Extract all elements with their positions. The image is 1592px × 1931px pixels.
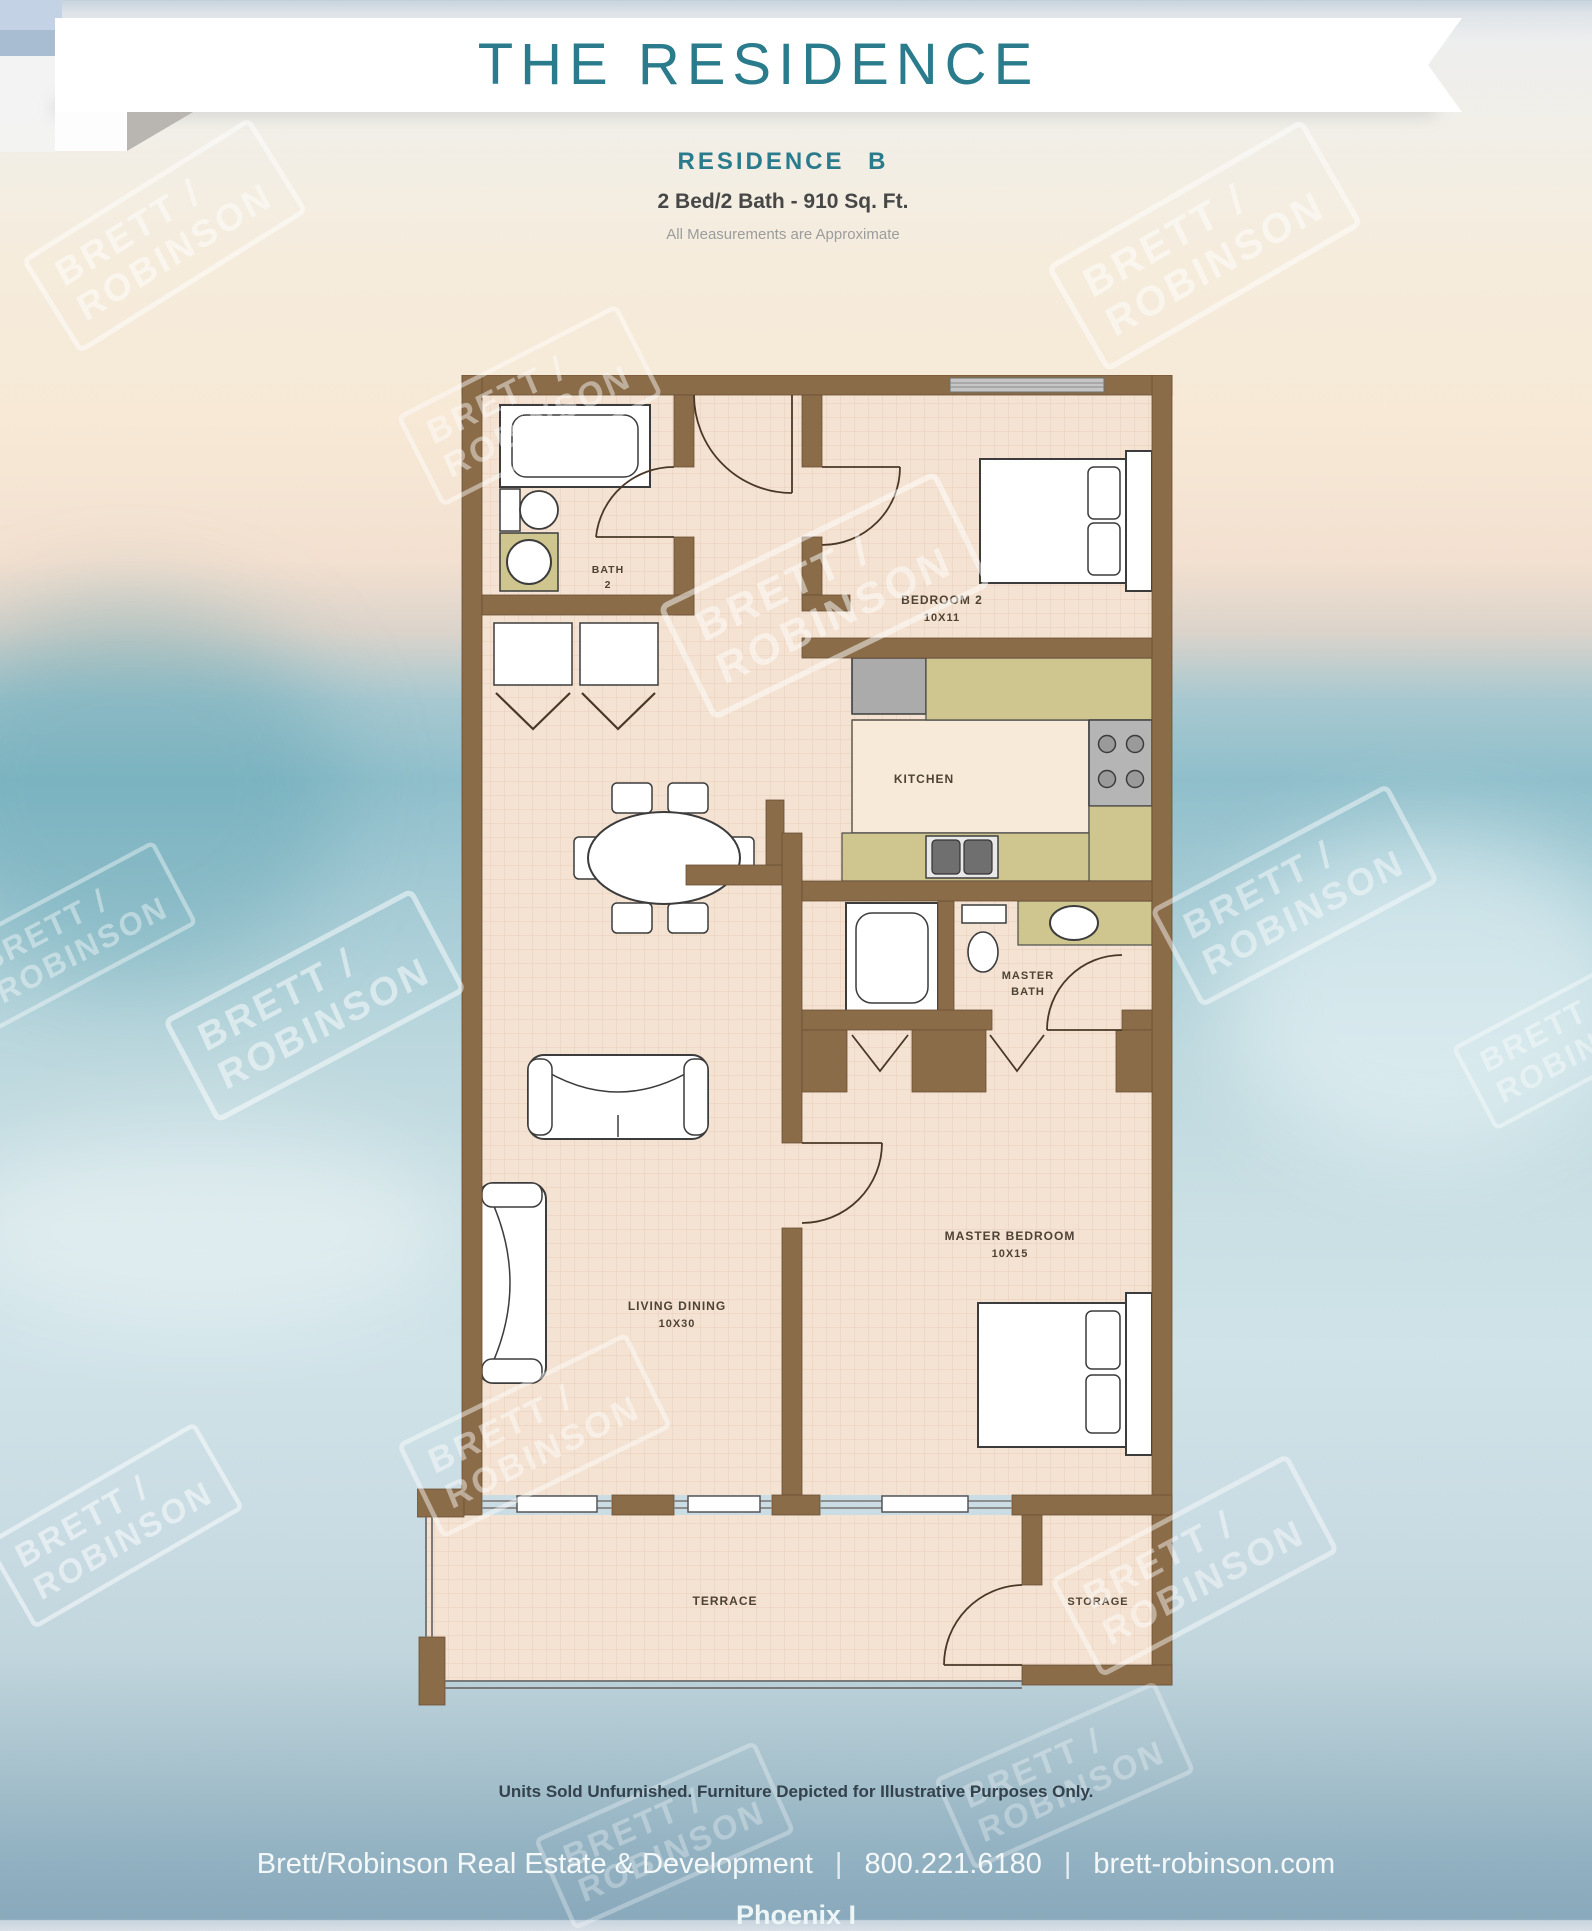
ocean-shade-left — [0, 600, 340, 980]
specs-label: 2 Bed/2 Bath - 910 Sq. Ft. — [0, 190, 1579, 214]
footer-separator-1: | — [835, 1848, 843, 1880]
label-master-bedroom: MASTER BEDROOM — [945, 1229, 1076, 1243]
bath2-toilet — [520, 491, 558, 529]
label-bedroom2: BEDROOM 2 — [901, 593, 983, 607]
dining-table — [588, 812, 740, 904]
stove — [1089, 720, 1152, 806]
footer-building-name: Phoenix I — [0, 1900, 1592, 1931]
subtitle-block: RESIDENCE B 2 Bed/2 Bath - 910 Sq. Ft. A… — [0, 148, 1579, 243]
master-sink — [1050, 906, 1098, 940]
floorplan: BATH 2 BEDROOM 2 10X11 KITCHEN MASTER BA… — [417, 375, 1217, 1715]
footer-phone: 800.221.6180 — [864, 1848, 1041, 1880]
footer-contact-line: Brett/Robinson Real Estate & Development… — [0, 1848, 1592, 1881]
footer-website: brett-robinson.com — [1093, 1848, 1335, 1880]
footer-disclaimer: Units Sold Unfurnished. Furniture Depict… — [0, 1782, 1592, 1802]
corner-white-patch — [0, 56, 55, 152]
brett-robinson-watermark: BRETT /ROBINSON — [0, 840, 198, 1031]
title-banner: THE RESIDENCE — [55, 18, 1462, 112]
floorplan-svg: BATH 2 BEDROOM 2 10X11 KITCHEN MASTER BA… — [417, 375, 1217, 1710]
master-toilet — [968, 932, 998, 972]
measurements-note: All Measurements are Approximate — [0, 226, 1579, 243]
kitchen-fixtures — [842, 658, 1152, 881]
bath2-toilet-tank — [500, 489, 520, 531]
residence-label: RESIDENCE B — [0, 148, 1579, 176]
label-kitchen: KITCHEN — [894, 772, 954, 786]
footer-separator-2: | — [1064, 1848, 1072, 1880]
foam-streak-bottom — [0, 1130, 460, 1330]
corner-sky-patch-1 — [0, 0, 62, 30]
svg-text:BATH: BATH — [1011, 986, 1045, 998]
label-living-dining: LIVING DINING — [628, 1299, 726, 1313]
svg-text:2: 2 — [605, 579, 612, 591]
label-storage: STORAGE — [1067, 1596, 1128, 1608]
brett-robinson-watermark: BRETT /ROBINSON — [1451, 940, 1592, 1131]
corner-sky-patch-2 — [0, 30, 62, 56]
page-title: THE RESIDENCE — [55, 18, 1462, 112]
svg-text:10X15: 10X15 — [992, 1248, 1029, 1260]
master-bed — [978, 1293, 1152, 1455]
sofa — [528, 1055, 708, 1139]
kitchen-counter-top — [926, 658, 1152, 720]
label-terrace: TERRACE — [692, 1594, 757, 1608]
terrace-slider-panels — [517, 1496, 968, 1512]
master-toilet-tank — [962, 905, 1006, 923]
foam-patch-right — [1220, 830, 1592, 1160]
loveseat — [478, 1183, 546, 1383]
bedroom2-window — [950, 378, 1104, 392]
bedroom2-bed — [980, 451, 1152, 591]
label-master-bath: MASTER — [1002, 970, 1054, 982]
label-bath2: BATH — [592, 564, 624, 576]
refrigerator — [852, 658, 926, 714]
svg-text:10X30: 10X30 — [659, 1318, 696, 1330]
bath2-tub — [500, 405, 650, 487]
footer-company-name: Brett/Robinson Real Estate & Development — [257, 1848, 813, 1880]
svg-text:10X11: 10X11 — [924, 612, 960, 624]
page: { "banner": { "title": "THE RESIDENCE" }… — [0, 0, 1592, 1920]
brett-robinson-watermark: BRETT /ROBINSON — [0, 1422, 245, 1630]
